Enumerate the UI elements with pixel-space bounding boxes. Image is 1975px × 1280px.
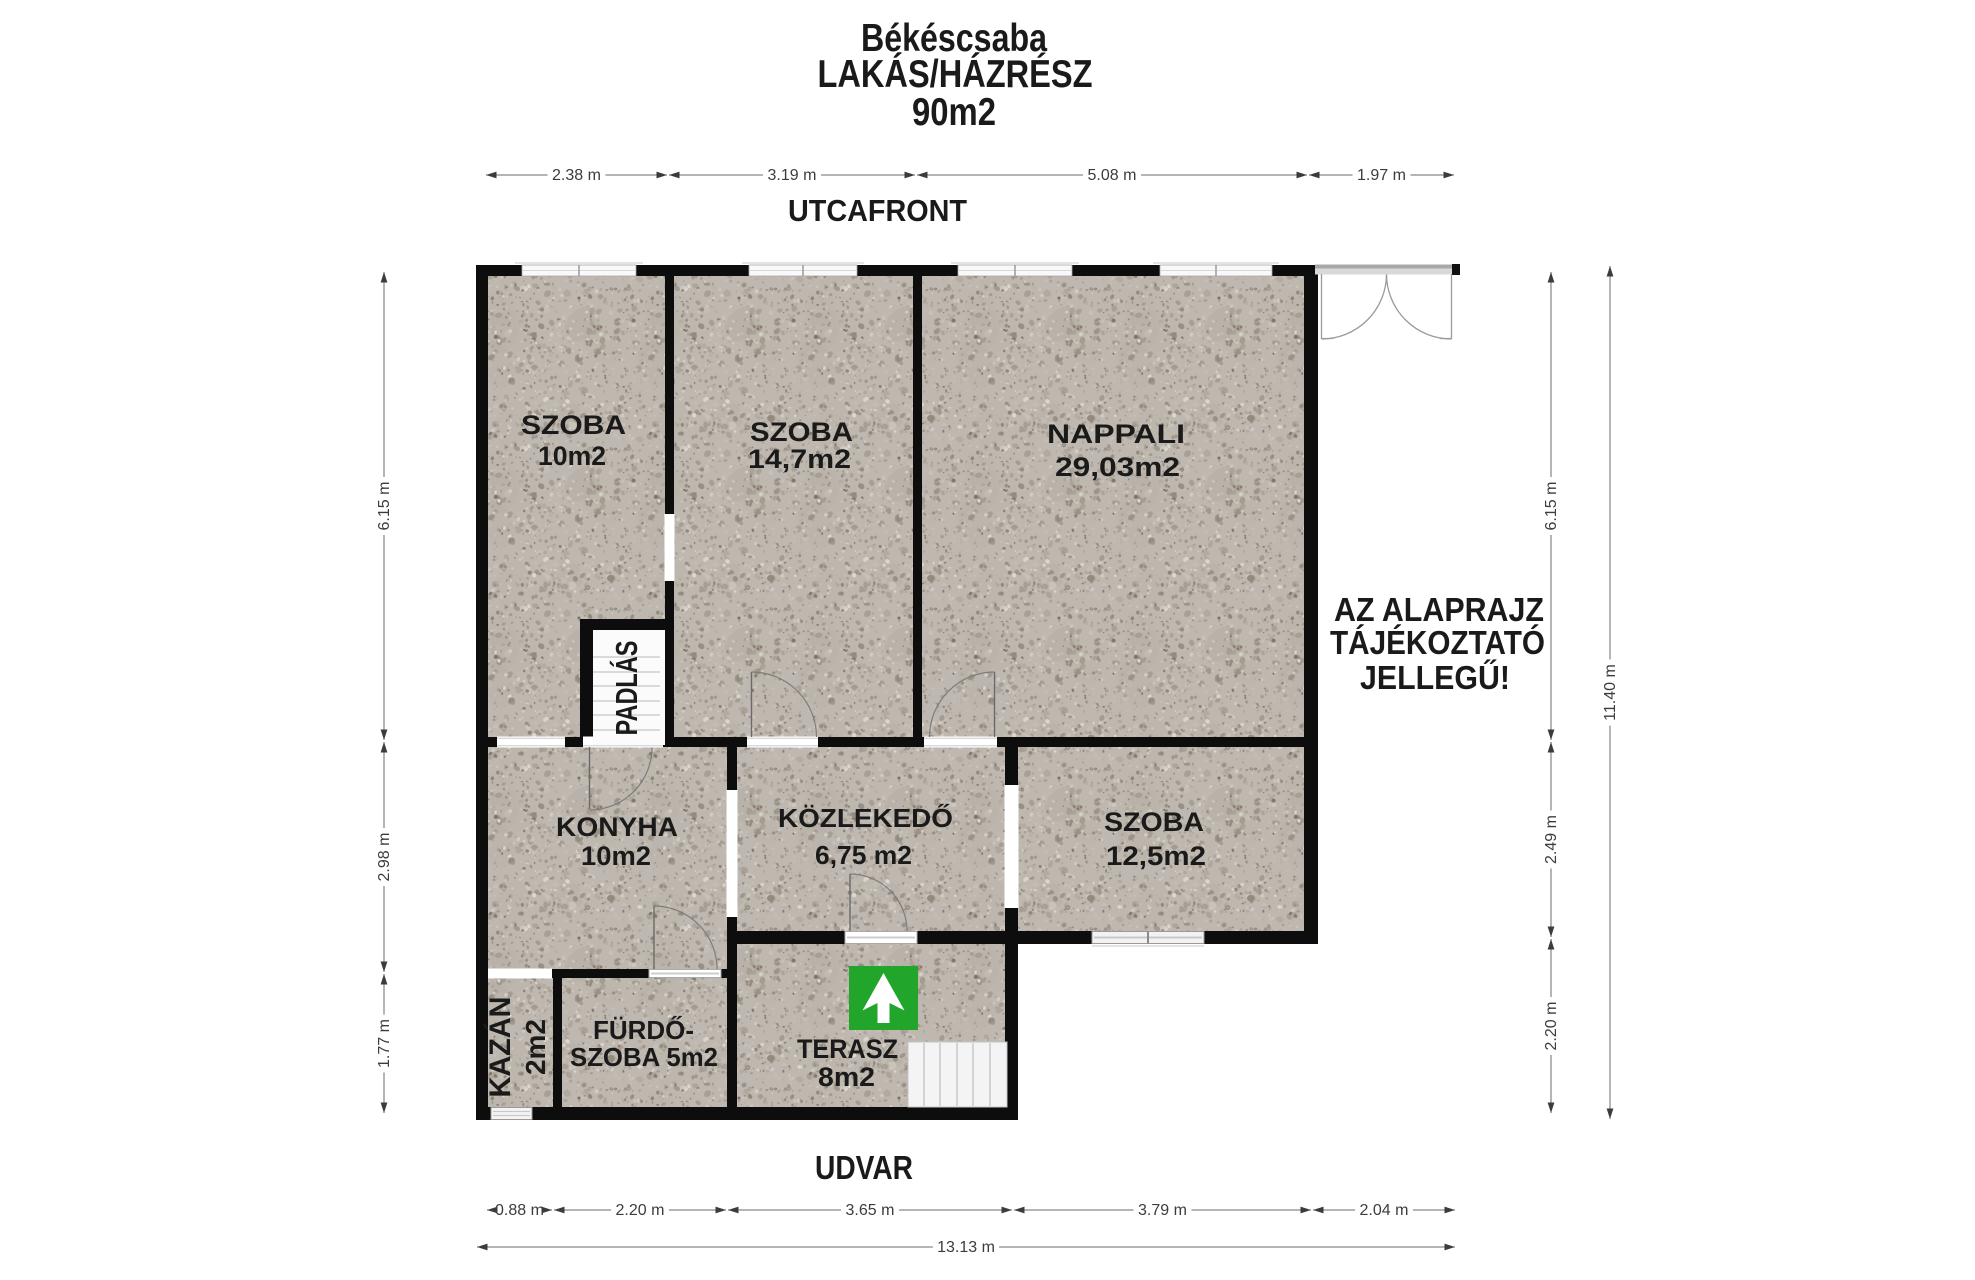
svg-text:5.08 m: 5.08 m <box>1088 167 1137 184</box>
svg-text:SZOBA: SZOBA <box>1104 807 1204 837</box>
svg-text:3.65 m: 3.65 m <box>846 1202 895 1219</box>
svg-text:2.20 m: 2.20 m <box>616 1202 665 1219</box>
svg-text:13.13 m: 13.13 m <box>937 1239 995 1256</box>
svg-text:TÁJÉKOZTATÓ: TÁJÉKOZTATÓ <box>1330 624 1545 661</box>
svg-text:6.15 m: 6.15 m <box>1543 482 1560 531</box>
svg-text:JELLEGŰ!: JELLEGŰ! <box>1360 659 1510 696</box>
svg-text:3.79 m: 3.79 m <box>1138 1202 1187 1219</box>
svg-text:12,5m2: 12,5m2 <box>1106 841 1206 871</box>
svg-text:2m2: 2m2 <box>520 1019 551 1075</box>
svg-text:1.77 m: 1.77 m <box>376 1019 393 1068</box>
svg-text:2.98 m: 2.98 m <box>376 833 393 882</box>
svg-text:UDVAR: UDVAR <box>815 1149 913 1186</box>
svg-text:UTCAFRONT: UTCAFRONT <box>788 193 967 228</box>
svg-text:2.49 m: 2.49 m <box>1543 815 1560 864</box>
svg-text:FÜRDŐ-: FÜRDŐ- <box>593 1015 694 1045</box>
svg-text:1.97 m: 1.97 m <box>1357 167 1406 184</box>
svg-text:NAPPALI: NAPPALI <box>1047 419 1185 449</box>
svg-text:PADLÁS: PADLÁS <box>609 641 644 736</box>
svg-text:KAZÁN: KAZÁN <box>483 997 517 1098</box>
svg-text:2.38 m: 2.38 m <box>552 167 601 184</box>
svg-text:TERASZ: TERASZ <box>797 1034 898 1064</box>
svg-text:6.15 m: 6.15 m <box>376 482 393 531</box>
svg-text:KONYHA: KONYHA <box>556 812 678 842</box>
svg-text:3.19 m: 3.19 m <box>768 167 817 184</box>
svg-text:SZOBA 5m2: SZOBA 5m2 <box>570 1042 718 1072</box>
svg-text:10m2: 10m2 <box>581 841 651 871</box>
svg-text:6,75 m2: 6,75 m2 <box>815 840 912 870</box>
svg-text:AZ ALAPRAJZ: AZ ALAPRAJZ <box>1334 591 1544 628</box>
svg-text:KÖZLEKEDŐ: KÖZLEKEDŐ <box>778 803 953 833</box>
svg-text:SZOBA: SZOBA <box>521 410 626 440</box>
svg-text:LAKÁS/HÁZRÉSZ: LAKÁS/HÁZRÉSZ <box>818 52 1093 96</box>
svg-text:2.20 m: 2.20 m <box>1543 1002 1560 1051</box>
svg-text:SZOBA: SZOBA <box>750 417 853 447</box>
svg-text:10m2: 10m2 <box>538 441 606 471</box>
svg-text:8m2: 8m2 <box>818 1062 875 1092</box>
svg-text:11.40 m: 11.40 m <box>1602 664 1619 721</box>
svg-text:29,03m2: 29,03m2 <box>1055 452 1180 482</box>
svg-text:90m2: 90m2 <box>912 91 996 134</box>
svg-text:0.88 m: 0.88 m <box>495 1202 544 1219</box>
svg-text:2.04 m: 2.04 m <box>1360 1202 1409 1219</box>
svg-text:14,7m2: 14,7m2 <box>748 444 851 474</box>
